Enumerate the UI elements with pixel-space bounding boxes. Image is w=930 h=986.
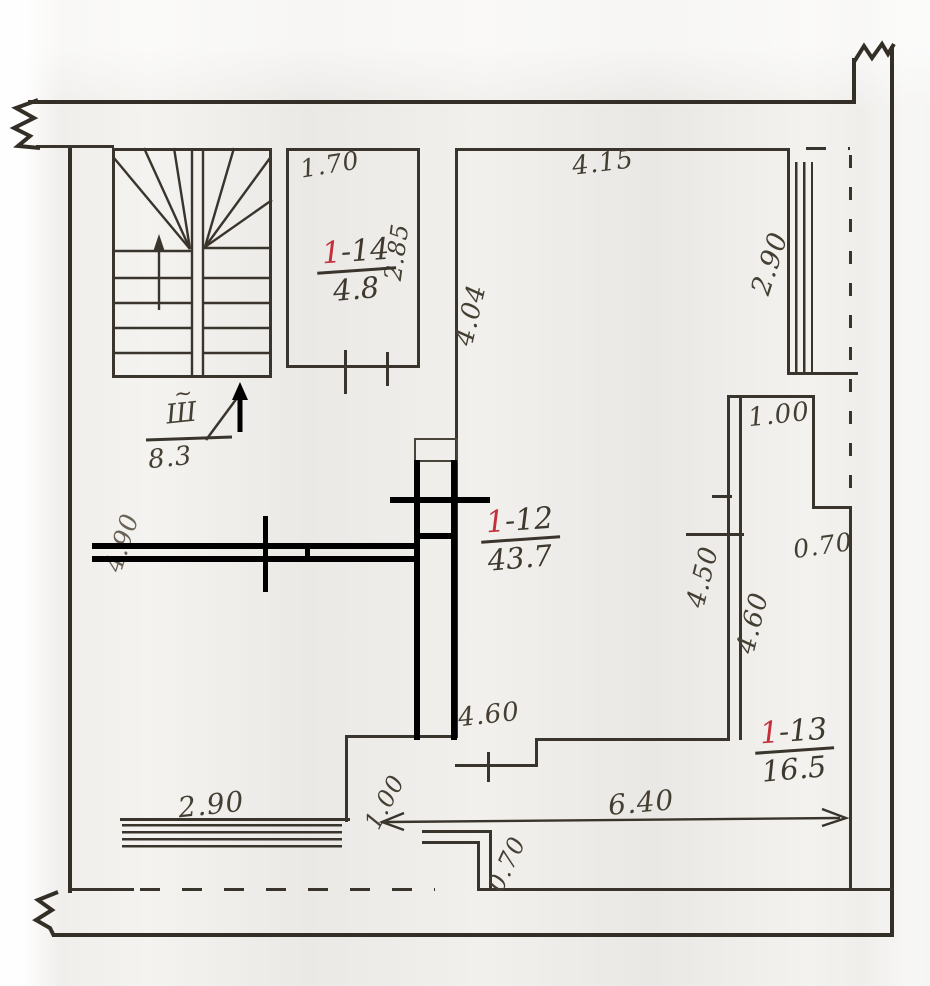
wall-lower-left-h bbox=[347, 735, 457, 738]
room-label-1-14: 1-14 4.8 bbox=[316, 236, 396, 304]
marker-wall-h-bottom bbox=[92, 556, 419, 562]
dim-room12-lower: 4.60 bbox=[457, 697, 522, 733]
room-number: 1-13 bbox=[753, 713, 835, 754]
dim-duct-right: 4.60 bbox=[731, 589, 775, 656]
jamb-tick-room14-a bbox=[344, 350, 347, 394]
wall-room12-bottom-left bbox=[455, 764, 538, 767]
marker-connector bbox=[414, 533, 457, 539]
wall-shaft-right bbox=[812, 395, 815, 509]
balcony-dashed-line bbox=[140, 888, 435, 891]
window-bottom bbox=[122, 824, 342, 852]
wall-room12-bottom-right bbox=[537, 738, 730, 741]
window-right-cap bbox=[787, 372, 858, 375]
room-number: 1-12 bbox=[479, 502, 561, 543]
right-dashed-line bbox=[849, 155, 852, 700]
jamb-tick-bottom bbox=[487, 752, 490, 782]
marker-wall-h-top bbox=[92, 543, 419, 549]
wall-shaft-jog bbox=[812, 506, 852, 509]
wall-step-v bbox=[535, 738, 538, 767]
wall-outer-left bbox=[68, 146, 72, 893]
pencil-box-above-marker bbox=[414, 438, 458, 462]
jamb-tick-shaft-b bbox=[712, 495, 732, 498]
dim-shaft-right-jog: 0.70 bbox=[791, 527, 854, 564]
room-label-1-13: 1-13 16.5 bbox=[752, 716, 836, 784]
wall-corner-inner-v bbox=[477, 841, 480, 891]
topright-dashed-line bbox=[806, 147, 850, 150]
stair-tilde: ~ bbox=[173, 381, 195, 408]
room-number: 1-14 bbox=[315, 233, 397, 274]
floor-plan-sheet: ~Ш 8.3 1.70 2.85 1-14 4.8 4.15 4.04 2.90… bbox=[0, 0, 930, 986]
wall-outer-top bbox=[28, 100, 856, 104]
marker-cross-tick-h bbox=[390, 497, 490, 503]
dim-bottom-span: 6.40 bbox=[607, 783, 676, 822]
dim-window-bottom: 2.90 bbox=[176, 785, 245, 825]
wall-break-bottom-left bbox=[34, 890, 66, 940]
wall-shaft-left-inner bbox=[739, 395, 742, 740]
room-area: 4.8 bbox=[315, 270, 397, 307]
stairs-up-arrow bbox=[153, 234, 165, 252]
marker-cross-tick-v bbox=[263, 516, 268, 592]
stair-designation: ~Ш bbox=[164, 396, 199, 430]
wall-corner-inner-h bbox=[422, 841, 480, 844]
wall-lower-left-v bbox=[345, 735, 348, 822]
wall-outer-right bbox=[890, 46, 894, 937]
dim-duct-left: 4.50 bbox=[681, 543, 725, 610]
window-right bbox=[787, 162, 813, 374]
wall-inner-top-left bbox=[36, 145, 114, 148]
wall-shaft-left-outer bbox=[727, 395, 730, 740]
wall-bottom-thin bbox=[478, 888, 893, 891]
wall-left-bottom-stub bbox=[72, 888, 134, 891]
jamb-tick-shaft-a bbox=[686, 533, 744, 536]
dim-room12-top: 4.15 bbox=[570, 144, 635, 181]
room-area: 43.7 bbox=[477, 539, 563, 577]
wall-break-top-right bbox=[842, 36, 902, 68]
marker-divider-tick bbox=[305, 543, 310, 562]
wall-outer-bottom bbox=[52, 933, 893, 937]
wall-break-top-left bbox=[12, 94, 46, 154]
stairs-treads bbox=[112, 148, 272, 378]
jamb-tick-room14-b bbox=[386, 352, 389, 386]
dim-shaft-top: 1.00 bbox=[747, 397, 812, 433]
stair-area: 8.3 bbox=[147, 441, 194, 475]
room-area: 16.5 bbox=[751, 750, 837, 788]
room-label-1-12: 1-12 43.7 bbox=[478, 505, 562, 573]
